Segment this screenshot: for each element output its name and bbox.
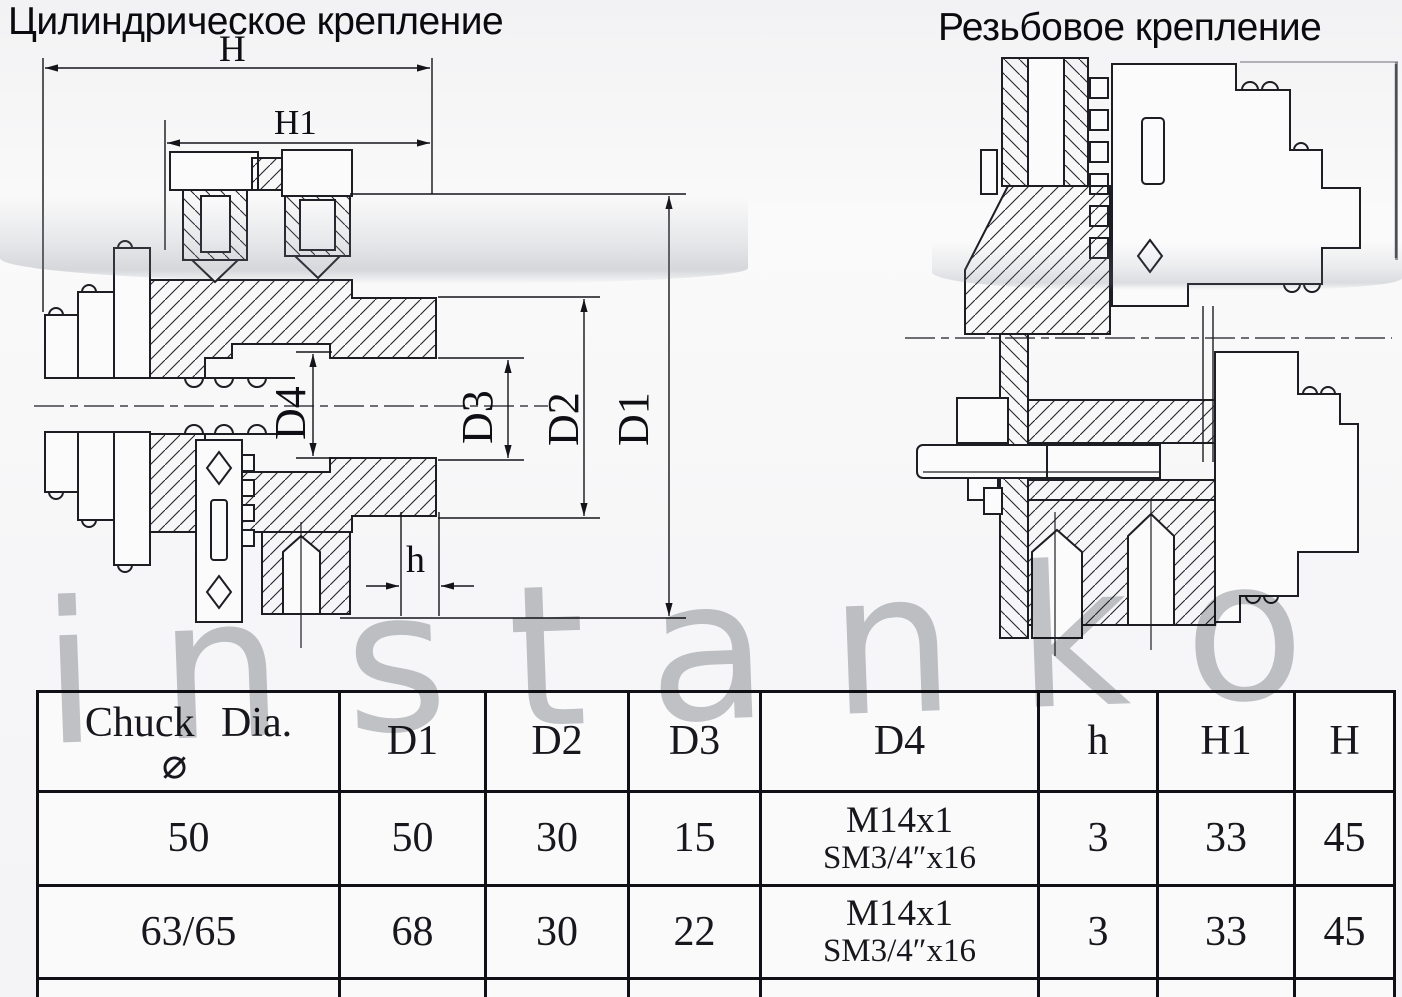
cell-r2-h (1040, 980, 1159, 997)
spec-table: Chuck Dia. ⌀ D1 D2 D3 D4 h H1 H 50 50 30… (36, 690, 1396, 997)
cell-r1-chuck-dia: 63/65 (39, 887, 341, 980)
cell-r1-d4: M14x1 SM3/4″x16 (762, 887, 1040, 980)
cell-r1-d4-line2: SM3/4″x16 (823, 934, 976, 969)
header-d3: D3 (630, 693, 762, 793)
cell-r1-H: 45 (1296, 887, 1393, 980)
cell-r0-d1: 50 (341, 793, 487, 887)
left-chuck-drawing: H H1 D4 D3 D2 D1 h (28, 20, 710, 690)
cell-r2-h1 (1159, 980, 1296, 997)
lower-body-section (917, 334, 1215, 656)
cell-r1-d3: 22 (630, 887, 762, 980)
cell-r1-d1: 68 (341, 887, 487, 980)
header-d1: D1 (341, 693, 487, 793)
cell-r2-chuck-dia (39, 980, 341, 997)
cell-r0-h: 3 (1040, 793, 1159, 887)
cell-r2-H (1296, 980, 1393, 997)
cell-r0-h1: 33 (1159, 793, 1296, 887)
dim-label-H: H (219, 29, 246, 70)
cell-r2-d2 (487, 980, 630, 997)
cell-r2-d1 (341, 980, 487, 997)
cell-r0-d4: M14x1 SM3/4″x16 (762, 793, 1040, 887)
cell-r0-chuck-dia: 50 (39, 793, 341, 887)
cell-r1-d4-line1: M14x1 (846, 895, 953, 934)
scanned-chuck-datasheet: Цилиндрическое крепление Резьбовое крепл… (0, 0, 1402, 997)
header-d4: D4 (762, 693, 1040, 793)
cell-r0-d4-line2: SM3/4″x16 (823, 841, 976, 876)
cell-r1-h: 3 (1040, 887, 1159, 980)
cell-r0-d4-line1: M14x1 (846, 802, 953, 841)
cell-r1-h1: 33 (1159, 887, 1296, 980)
flange-section (1215, 352, 1358, 622)
dim-label-D4: D4 (266, 386, 315, 440)
header-d2: D2 (487, 693, 630, 793)
cell-r2-d4 (762, 980, 1040, 997)
cell-r0-H: 45 (1296, 793, 1393, 887)
header-h1: H1 (1159, 693, 1296, 793)
header-h: h (1040, 693, 1159, 793)
dim-label-D3: D3 (453, 390, 502, 444)
right-chuck-drawing (895, 35, 1402, 695)
header-chuck-dia: Chuck Dia. ⌀ (39, 693, 341, 793)
dim-label-D2: D2 (539, 392, 588, 446)
dim-label-D1: D1 (609, 392, 658, 446)
cell-r0-d2: 30 (487, 793, 630, 887)
cell-r0-d3: 15 (630, 793, 762, 887)
dim-label-h: h (406, 539, 425, 581)
header-chuck-dia-label: Chuck Dia. (85, 701, 292, 745)
cell-r2-d3 (630, 980, 762, 997)
header-H: H (1296, 693, 1393, 793)
cell-r1-d2: 30 (487, 887, 630, 980)
jaw-guide (196, 440, 254, 622)
top-screw-details (170, 150, 352, 282)
diameter-symbol: ⌀ (162, 742, 187, 786)
dim-label-H1: H1 (274, 103, 317, 142)
